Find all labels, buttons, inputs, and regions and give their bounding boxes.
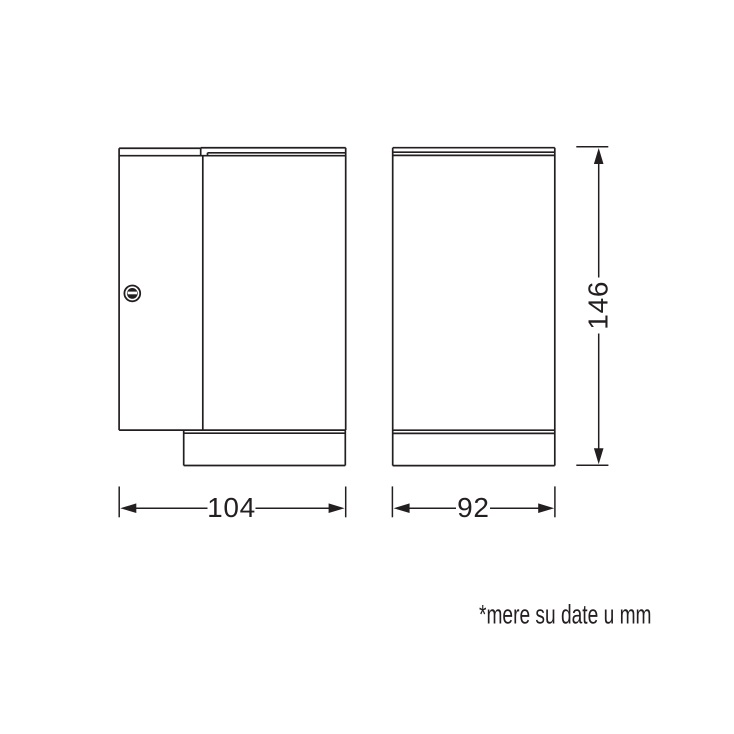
svg-text:146: 146: [583, 281, 614, 330]
svg-text:92: 92: [457, 492, 490, 523]
svg-text:104: 104: [207, 492, 256, 523]
svg-text:*mere su date u mm: *mere su date u mm: [479, 600, 652, 630]
